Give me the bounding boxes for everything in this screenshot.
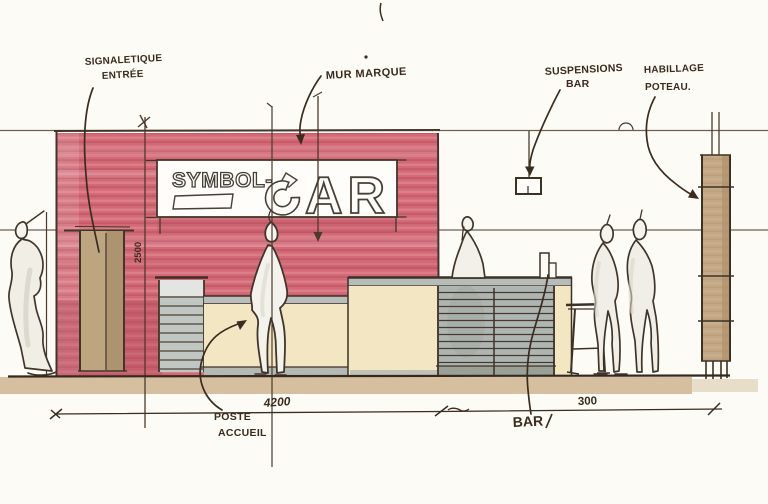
svg-text:BAR: BAR	[512, 412, 543, 430]
svg-text:4200: 4200	[262, 394, 291, 410]
svg-text:POSTE: POSTE	[214, 411, 251, 423]
svg-text:SYMBOL-: SYMBOL-	[172, 169, 273, 192]
svg-text:300: 300	[578, 395, 598, 408]
svg-text:BAR: BAR	[566, 78, 590, 90]
svg-text:2500: 2500	[133, 242, 144, 263]
svg-text:ACCUEIL: ACCUEIL	[218, 427, 267, 439]
svg-text:HABILLAGE: HABILLAGE	[644, 63, 705, 76]
svg-text:POTEAU.: POTEAU.	[645, 82, 691, 93]
